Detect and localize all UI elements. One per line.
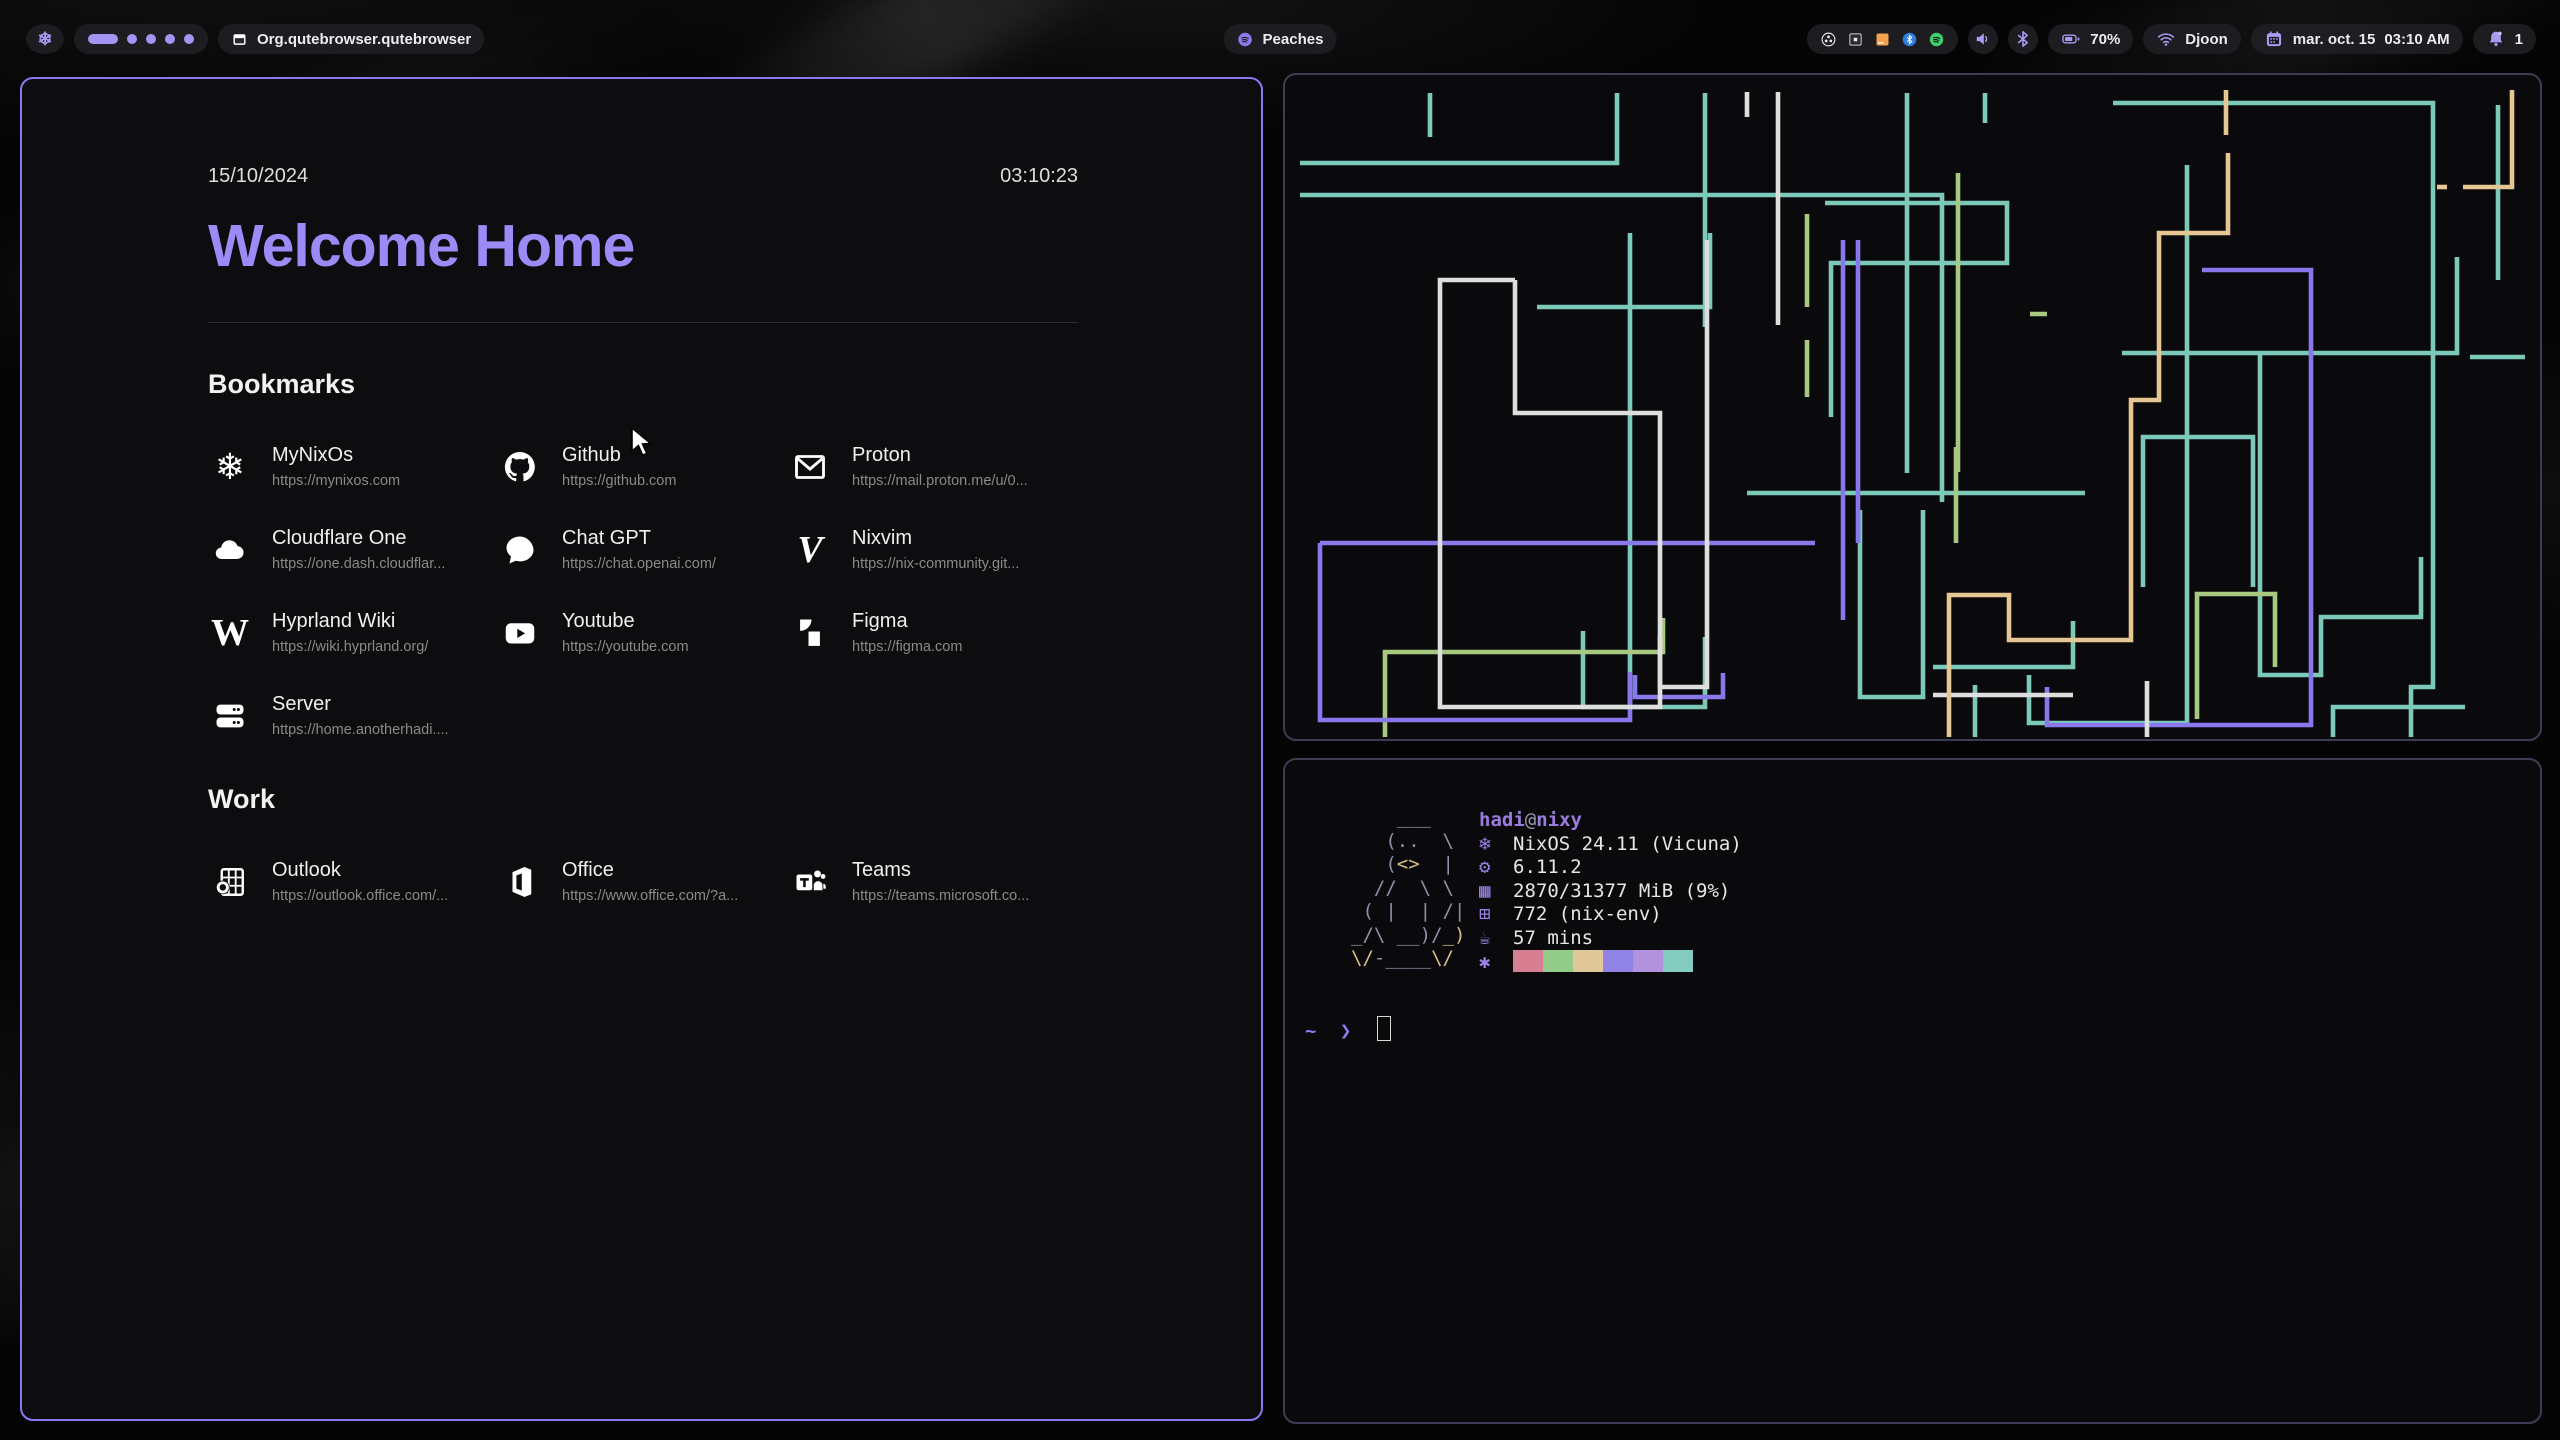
divider (208, 322, 1078, 323)
server-icon (208, 694, 252, 738)
teams-icon (788, 860, 832, 904)
pipes-terminal-window (1283, 73, 2542, 741)
tux-ascii-art: ___ (.. \ (<> | // \ \ ( | | /| _/\ __)/… (1351, 806, 1465, 971)
kernel-value: 6.11.2 (1513, 856, 1582, 878)
pipe-segment-teal (1300, 195, 1942, 502)
network-chip[interactable]: Djoon (2143, 24, 2241, 54)
pipe-segment-teal (1825, 203, 2007, 417)
bluetooth-tray-icon[interactable] (1901, 31, 1918, 48)
pipe-segment-teal (1933, 621, 2073, 667)
github-icon (498, 445, 542, 489)
bookmark-url: https://home.anotherhadi.... (272, 722, 449, 738)
vim-icon: V (788, 528, 832, 572)
keepass-tray-icon[interactable] (1847, 31, 1864, 48)
nix-icon: ❄ (208, 445, 252, 489)
bookmark-server[interactable]: Serverhttps://home.anotherhadi.... (208, 693, 498, 738)
uptime-value: 57 mins (1513, 927, 1593, 949)
notifications-chip[interactable]: 1 (2473, 24, 2536, 54)
spotify-tray-icon[interactable] (1928, 31, 1945, 48)
fetch-row-packages: ⊞772 (nix-env) (1479, 903, 1742, 927)
launcher-button[interactable]: ❄ (26, 24, 64, 54)
volume-chip[interactable] (1968, 24, 1998, 54)
pipe-segment-teal (1300, 93, 1617, 163)
bookmark-url: https://figma.com (852, 639, 962, 655)
bookmark-name: MyNixOs (272, 444, 400, 467)
pipe-segment-teal (1860, 510, 1923, 697)
notification-count: 1 (2515, 31, 2523, 48)
bluetooth-icon (2013, 29, 2033, 49)
active-window-chip[interactable]: Org.qutebrowser.qutebrowser (218, 24, 484, 54)
palette-swatch-3 (1603, 950, 1633, 972)
speaker-icon (1973, 29, 1993, 49)
pipe-segment-teal (1537, 233, 1710, 307)
bookmark-name: Cloudflare One (272, 527, 445, 550)
pipe-segment-teal (2333, 707, 2465, 737)
workspace-5[interactable] (184, 34, 194, 44)
wifi-icon (2156, 29, 2176, 49)
mail-icon (788, 445, 832, 489)
figma-icon (788, 611, 832, 655)
workspace-2[interactable] (127, 34, 137, 44)
bookmark-url: https://outlook.office.com/... (272, 888, 448, 904)
bookmark-name: Figma (852, 610, 962, 633)
obs-tray-icon[interactable] (1820, 31, 1837, 48)
bookmark-name: Server (272, 693, 449, 716)
wiki-icon: W (208, 611, 252, 655)
fetch-terminal-window: ___ (.. \ (<> | // \ \ ( | | /| _/\ __)/… (1283, 758, 2542, 1424)
bookmark-name: Github (562, 444, 676, 467)
bookmark-name: Chat GPT (562, 527, 716, 550)
pipes-art (1285, 75, 2540, 739)
system-tray[interactable] (1807, 24, 1958, 54)
bookmark-url: https://nix-community.git... (852, 556, 1019, 572)
bookmark-url: https://youtube.com (562, 639, 689, 655)
media-track-label: Peaches (1263, 31, 1324, 48)
palette-swatch-1 (1543, 950, 1573, 972)
prompt-cwd: ~ (1305, 1020, 1316, 1042)
bookmark-url: https://wiki.hyprland.org/ (272, 639, 428, 655)
pipe-segment-green (2197, 594, 2275, 719)
palette-swatch-0 (1513, 950, 1543, 972)
bookmark-url: https://teams.microsoft.co... (852, 888, 1029, 904)
palette-icon: ✱ (1479, 951, 1513, 975)
bookmark-chat-gpt[interactable]: Chat GPThttps://chat.openai.com/ (498, 527, 788, 572)
bookmark-outlook[interactable]: Outlookhttps://outlook.office.com/... (208, 859, 498, 904)
clock-time: 03:10 AM (2384, 31, 2449, 48)
bookmark-name: Youtube (562, 610, 689, 633)
bookmark-url: https://one.dash.cloudflar... (272, 556, 445, 572)
bookmark-grid: Outlookhttps://outlook.office.com/...Off… (208, 859, 1078, 904)
wifi-ssid: Djoon (2185, 31, 2228, 48)
workspace-4[interactable] (165, 34, 175, 44)
workspace-1[interactable] (88, 34, 118, 44)
fetch-row-colors: ✱ (1479, 950, 1742, 975)
packages-value: 772 (nix-env) (1513, 903, 1662, 925)
bookmark-url: https://mynixos.com (272, 473, 400, 489)
active-window-title: Org.qutebrowser.qutebrowser (257, 31, 471, 48)
bookmark-url: https://mail.proton.me/u/0... (852, 473, 1028, 489)
cloud-icon (208, 528, 252, 572)
bookmark-grid: ❄MyNixOshttps://mynixos.comGithubhttps:/… (208, 444, 1078, 738)
bookmark-office[interactable]: Officehttps://www.office.com/?a... (498, 859, 788, 904)
fetch-row-os: ❄NixOS 24.11 (Vicuna) (1479, 833, 1742, 857)
clock-date: mar. oct. 15 (2293, 31, 2376, 48)
bookmark-github[interactable]: Githubhttps://github.com (498, 444, 788, 489)
memory-icon: ▦ (1479, 880, 1513, 904)
prompt-symbol: ❯ (1340, 1020, 1351, 1042)
orange-app-tray-icon[interactable] (1874, 31, 1891, 48)
nixos-logo-icon: ❄ (37, 30, 52, 48)
fetch-row-uptime: ☕57 mins (1479, 927, 1742, 951)
kernel-icon: ⚙ (1479, 856, 1513, 880)
os-value: NixOS 24.11 (Vicuna) (1513, 833, 1742, 855)
user-host-line: hadi@nixy (1479, 809, 1742, 833)
bookmark-url: https://chat.openai.com/ (562, 556, 716, 572)
bell-icon (2486, 29, 2506, 49)
palette-swatch-4 (1633, 950, 1663, 972)
page-time: 03:10:23 (1000, 165, 1078, 188)
pipe-segment-teal (2143, 437, 2253, 587)
bookmark-youtube[interactable]: Youtubehttps://youtube.com (498, 610, 788, 655)
terminal-color-palette (1513, 950, 1693, 972)
bookmark-proton[interactable]: Protonhttps://mail.proton.me/u/0... (788, 444, 1078, 489)
shell-prompt[interactable]: ~ ❯ (1305, 1016, 1391, 1044)
os-icon: ❄ (1479, 833, 1513, 857)
fetch-row-memory: ▦2870/31377 MiB (9%) (1479, 880, 1742, 904)
chat-icon (498, 528, 542, 572)
uptime-icon: ☕ (1479, 927, 1513, 951)
bookmark-mynixos[interactable]: ❄MyNixOshttps://mynixos.com (208, 444, 498, 489)
bookmark-nixvim[interactable]: VNixvimhttps://nix-community.git... (788, 527, 1078, 572)
clock-chip[interactable]: mar. oct. 15 03:10 AM (2251, 24, 2463, 54)
bookmark-name: Teams (852, 859, 1029, 882)
page-title: Welcome Home (208, 212, 1078, 280)
bookmark-figma[interactable]: Figmahttps://figma.com (788, 610, 1078, 655)
memory-value: 2870/31377 MiB (9%) (1513, 880, 1730, 902)
status-bar: ❄ Org.qutebrowser.qutebrowser Peaches (0, 24, 2560, 54)
workspace-3[interactable] (146, 34, 156, 44)
battery-chip[interactable]: 70% (2048, 24, 2133, 54)
pipe-segment-purple (2047, 270, 2311, 725)
battery-percent: 70% (2090, 31, 2120, 48)
workspace-indicator[interactable] (74, 24, 208, 54)
bookmark-name: Nixvim (852, 527, 1019, 550)
pipe-segment-teal (2260, 355, 2421, 675)
bookmark-url: https://github.com (562, 473, 676, 489)
pipe-segment-tan (2463, 90, 2512, 187)
fetch-row-kernel: ⚙6.11.2 (1479, 856, 1742, 880)
pipe-segment-white (1440, 280, 1660, 707)
section-heading-bookmarks: Bookmarks (208, 369, 1078, 400)
battery-icon (2061, 29, 2081, 49)
bookmark-name: Proton (852, 444, 1028, 467)
qutebrowser-window: 15/10/2024 03:10:23 Welcome Home Bookmar… (20, 77, 1263, 1421)
media-player-chip[interactable]: Peaches (1224, 24, 1337, 54)
spotify-icon (1237, 31, 1254, 48)
calendar-icon (2264, 29, 2284, 49)
bookmark-cloudflare-one[interactable]: Cloudflare Onehttps://one.dash.cloudflar… (208, 527, 498, 572)
bookmark-hyprland-wiki[interactable]: WHyprland Wikihttps://wiki.hyprland.org/ (208, 610, 498, 655)
palette-swatch-2 (1573, 950, 1603, 972)
office-icon (498, 860, 542, 904)
bookmark-url: https://www.office.com/?a... (562, 888, 738, 904)
bookmark-name: Office (562, 859, 738, 882)
youtube-icon (498, 611, 542, 655)
window-icon (231, 31, 248, 48)
outlook-icon (208, 860, 252, 904)
bluetooth-chip[interactable] (2008, 24, 2038, 54)
terminal-cursor (1377, 1016, 1391, 1041)
page-date: 15/10/2024 (208, 165, 308, 188)
bookmark-name: Hyprland Wiki (272, 610, 428, 633)
bookmark-name: Outlook (272, 859, 448, 882)
section-heading-work: Work (208, 784, 1078, 815)
packages-icon: ⊞ (1479, 903, 1513, 927)
palette-swatch-5 (1663, 950, 1693, 972)
bookmark-teams[interactable]: Teamshttps://teams.microsoft.co... (788, 859, 1078, 904)
